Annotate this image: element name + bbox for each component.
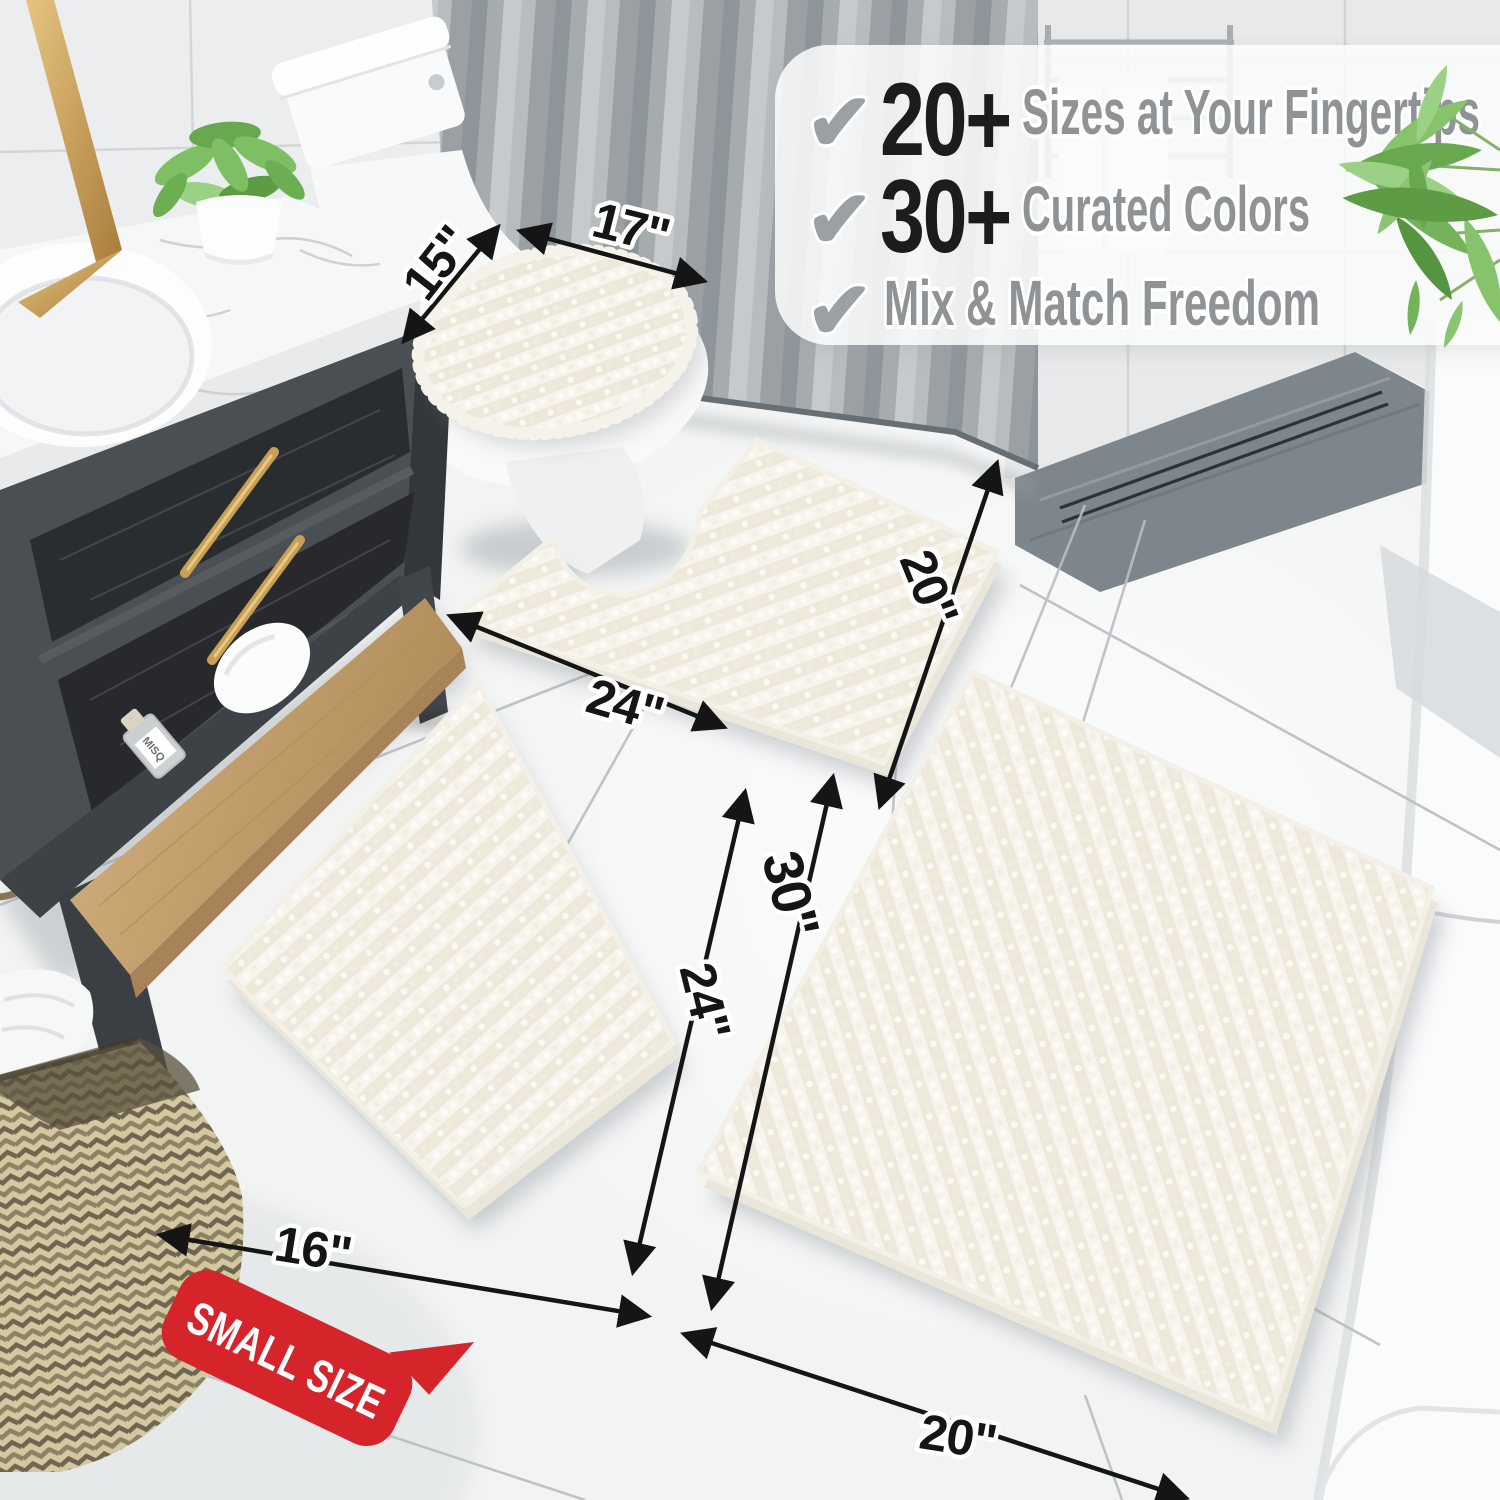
checkmark-icon: ✔ (806, 78, 873, 167)
dimension-label-small-width: 16" (271, 1215, 355, 1282)
feature-label: Mix & Match Freedom (884, 267, 1320, 339)
checkmark-icon: ✔ (806, 266, 873, 355)
dimension-label-large-width: 20" (916, 1403, 1000, 1470)
feature-label: Curated Colors (1022, 173, 1310, 245)
product-image: MISQ (0, 0, 1500, 1500)
plant-pot (196, 195, 282, 260)
feature-stat: 30+ (880, 159, 1010, 275)
checkmark-icon: ✔ (806, 175, 873, 264)
bathroom-scene-svg: MISQ (0, 0, 1500, 1500)
